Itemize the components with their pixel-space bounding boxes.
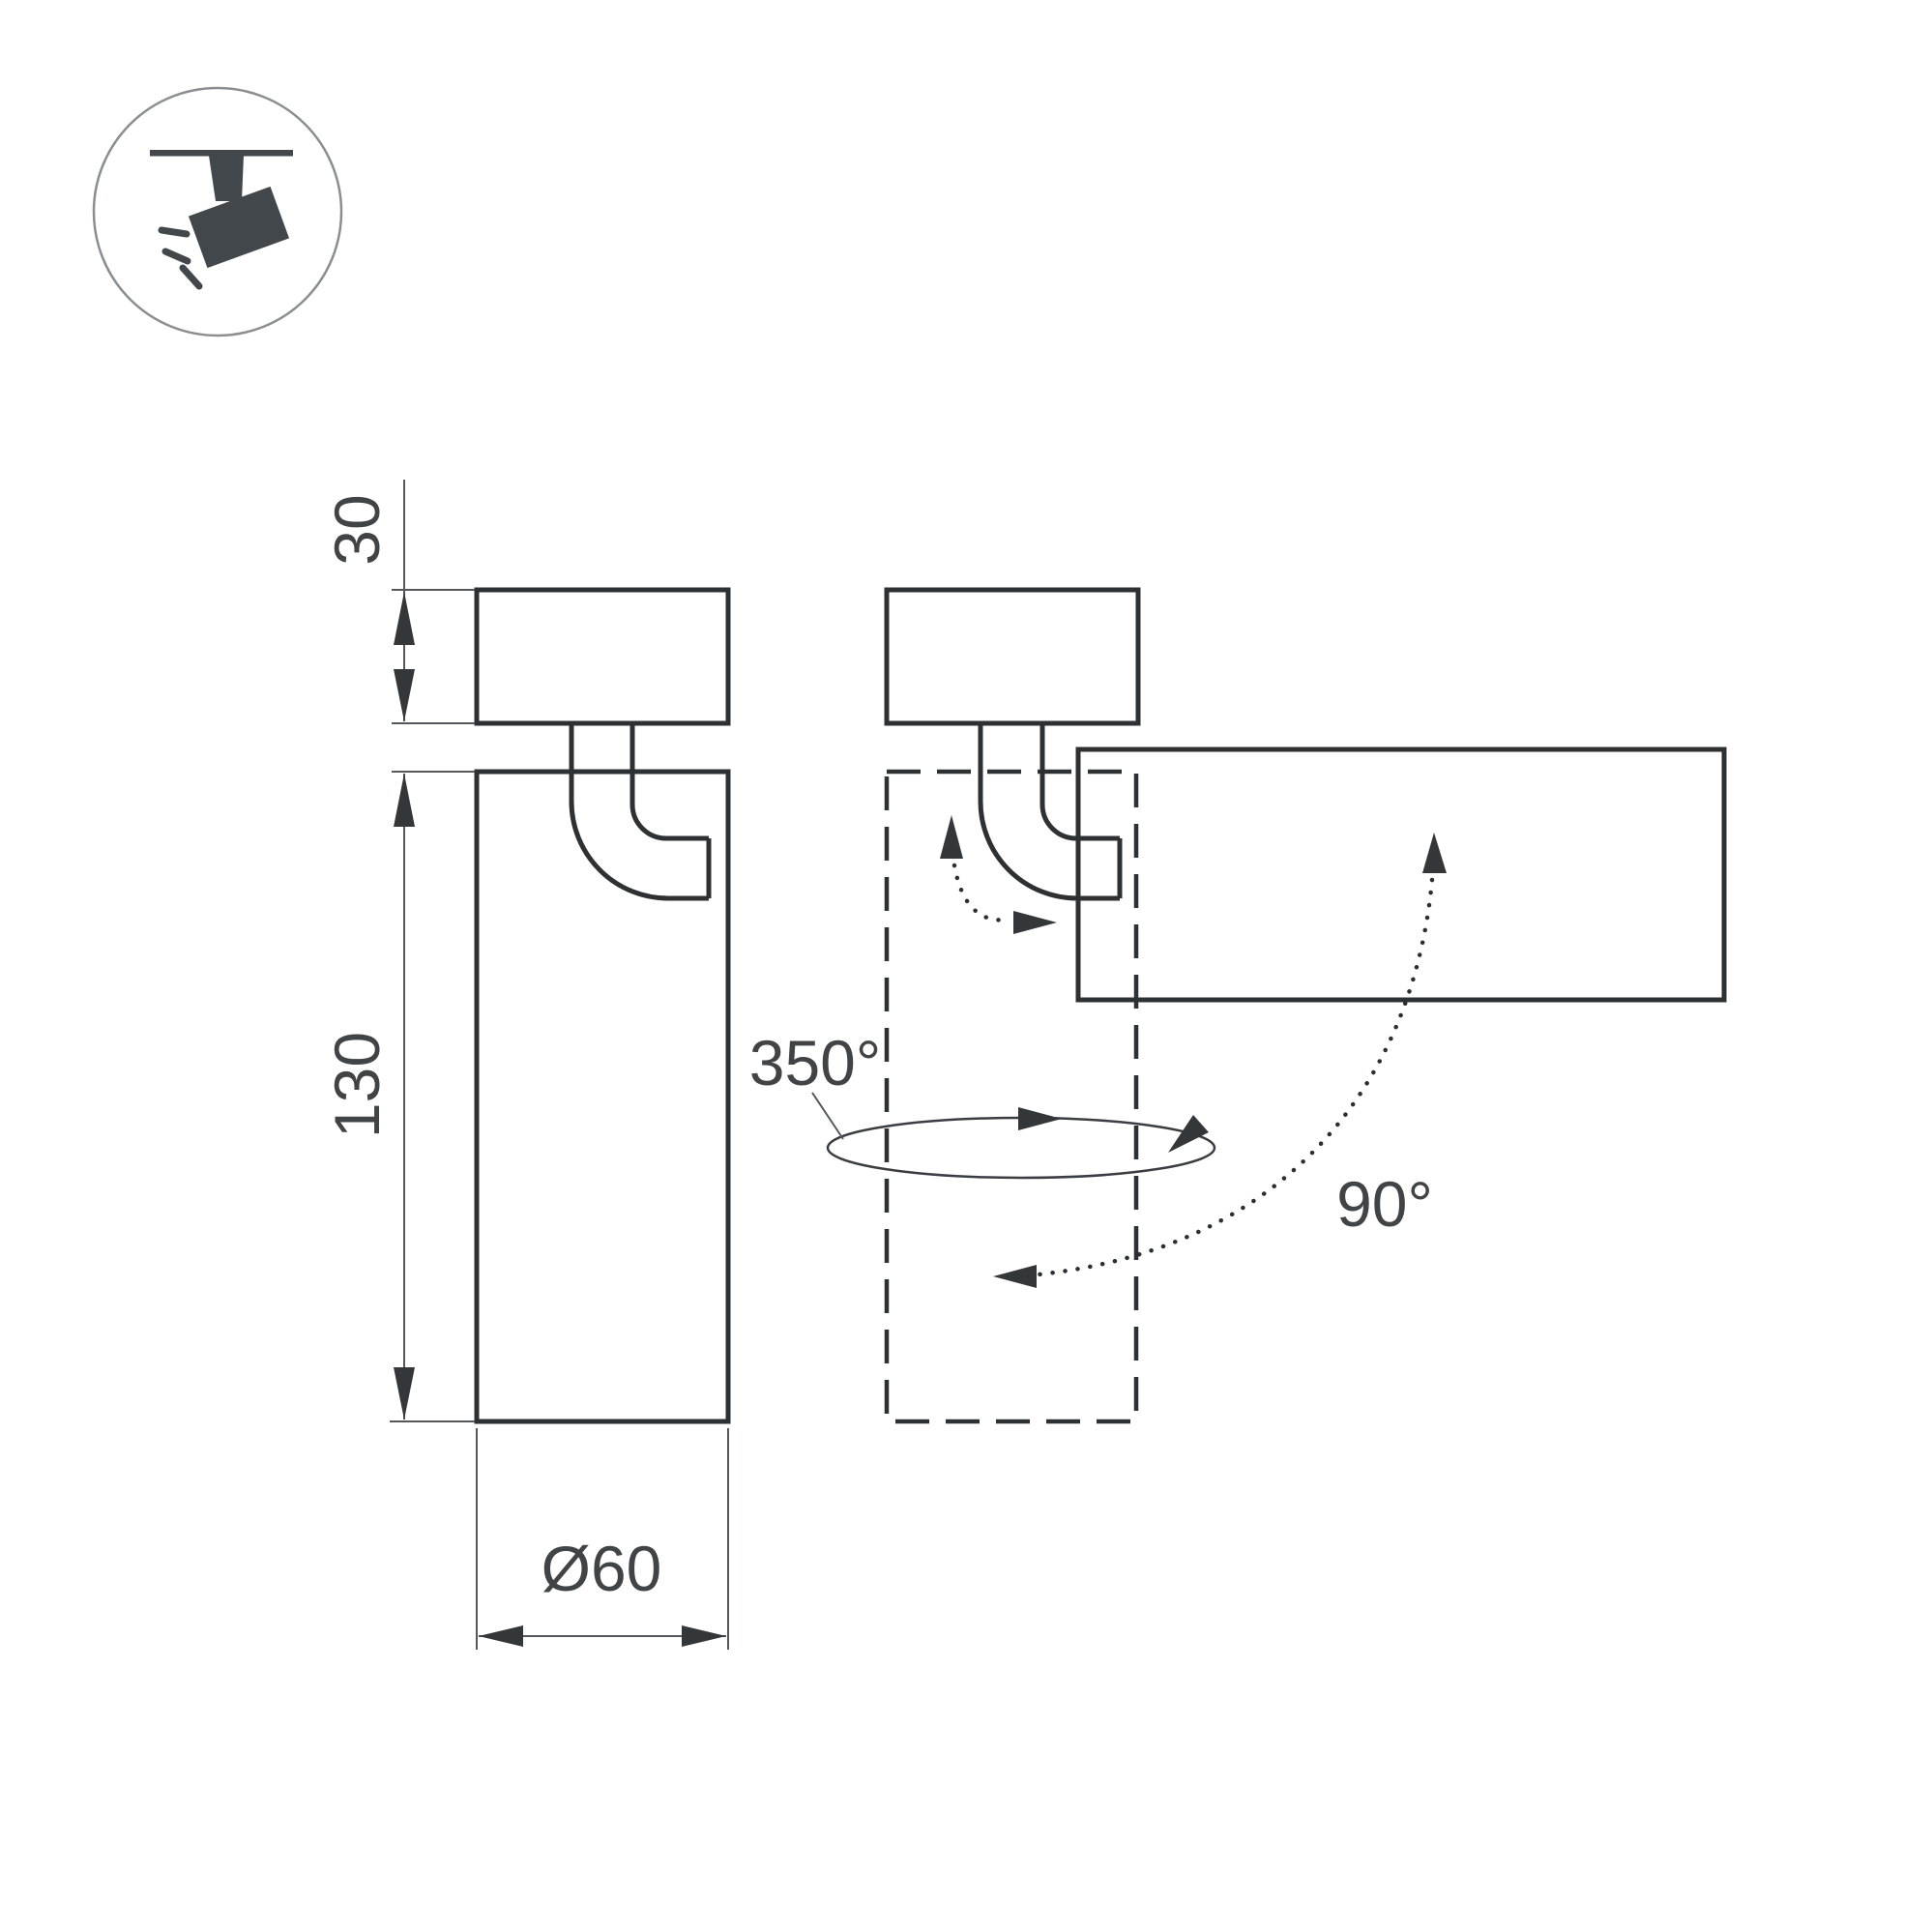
tilt-arrow-left bbox=[993, 1265, 1037, 1288]
dimension-label-30: 30 bbox=[321, 494, 393, 565]
arrowhead-d60-left bbox=[479, 1625, 523, 1647]
body-cylinder-horizontal bbox=[1078, 749, 1724, 1000]
rotation-label-350: 350° bbox=[749, 1027, 882, 1098]
spotlight-dimension-drawing: 30 130 Ø60 350° 90° bbox=[0, 0, 1932, 1932]
elbow-swivel-arc bbox=[954, 865, 1010, 921]
leader-line-350 bbox=[812, 1093, 843, 1139]
dimension-label-d60: Ø60 bbox=[542, 1533, 662, 1604]
dimension-body-length: 130 bbox=[321, 772, 475, 1421]
tilt-label-90: 90° bbox=[1336, 1168, 1433, 1240]
arrowhead-30-up bbox=[394, 592, 415, 645]
icon-spot-head bbox=[189, 187, 289, 268]
dimension-mount-height: 30 bbox=[321, 480, 475, 723]
arrowhead-30-down bbox=[394, 669, 415, 721]
dimension-label-130: 130 bbox=[321, 1032, 393, 1138]
track-spotlight-icon bbox=[94, 88, 341, 336]
arrowhead-130-up bbox=[394, 774, 415, 827]
icon-ceiling-bar bbox=[150, 150, 293, 157]
rotation-arrow-cw bbox=[1018, 1107, 1062, 1130]
elbow-arrow-right bbox=[1013, 911, 1057, 934]
rotated-view bbox=[887, 590, 1724, 1421]
arrowhead-d60-right bbox=[682, 1625, 726, 1647]
icon-light-ray-1 bbox=[161, 230, 187, 234]
icon-light-ray-3 bbox=[183, 268, 199, 286]
icon-light-ray-2 bbox=[165, 251, 188, 261]
rotation-arrow-ccw bbox=[1168, 1115, 1209, 1153]
dimension-diameter: Ø60 bbox=[477, 1428, 728, 1650]
mount-box-front bbox=[477, 590, 728, 723]
drawing-page: 30 130 Ø60 350° 90° bbox=[0, 0, 1932, 1932]
front-view bbox=[477, 590, 728, 1421]
icon-stem bbox=[209, 156, 244, 201]
elbow-arrow-up bbox=[940, 815, 963, 859]
arrowhead-130-down bbox=[394, 1367, 415, 1420]
mount-box-rotated bbox=[887, 590, 1138, 723]
body-cylinder-front bbox=[477, 772, 728, 1421]
rotation-indicator-350: 350° bbox=[749, 1027, 1215, 1178]
